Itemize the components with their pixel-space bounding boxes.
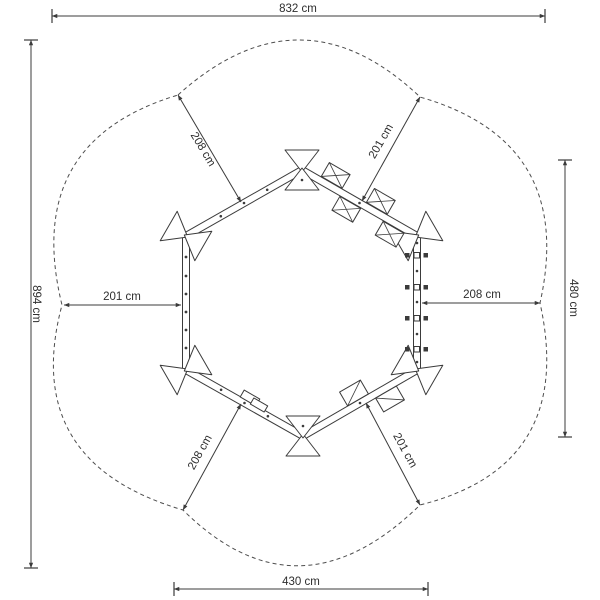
corner-brace-top [285, 150, 319, 190]
dim-label-430: 430 cm [282, 576, 320, 588]
dim-zone-height-right: 480 cm [558, 160, 579, 437]
dim-label-201-bottom-right: 201 cm [390, 431, 419, 470]
dim-label-832: 832 cm [279, 3, 317, 15]
dim-label-201-mid-left: 201 cm [103, 291, 141, 303]
dim-clearance-top-right: 201 cm [362, 97, 420, 201]
dim-clearance-bottom-right: 201 cm [366, 403, 420, 505]
dim-label-208-mid-right: 208 cm [463, 289, 501, 301]
dim-clearance-mid-left: 201 cm [64, 291, 181, 305]
dim-label-480: 480 cm [567, 279, 579, 317]
dim-label-208-bottom-left: 208 cm [186, 433, 215, 472]
hexagon-frame [160, 150, 443, 456]
dim-clearance-bottom-left: 208 cm [183, 404, 241, 510]
beam-marker-dots [220, 179, 362, 428]
drawing-canvas: 832 cm 894 cm 480 cm 430 cm 208 cm 201 c… [0, 0, 600, 600]
dim-zone-width-bottom: 430 cm [174, 576, 428, 596]
dim-overall-height-left: 894 cm [24, 40, 42, 568]
dim-label-894: 894 cm [30, 285, 42, 323]
dim-overall-width-top: 832 cm [52, 3, 545, 23]
dim-label-208-top-left: 208 cm [188, 130, 218, 169]
dim-label-201-top-right: 201 cm [367, 122, 396, 161]
corner-brace-bottom [286, 416, 320, 456]
dim-clearance-top-left: 208 cm [178, 95, 241, 202]
dim-clearance-mid-right: 208 cm [422, 289, 540, 303]
technical-drawing: 832 cm 894 cm 480 cm 430 cm 208 cm 201 c… [0, 0, 600, 600]
